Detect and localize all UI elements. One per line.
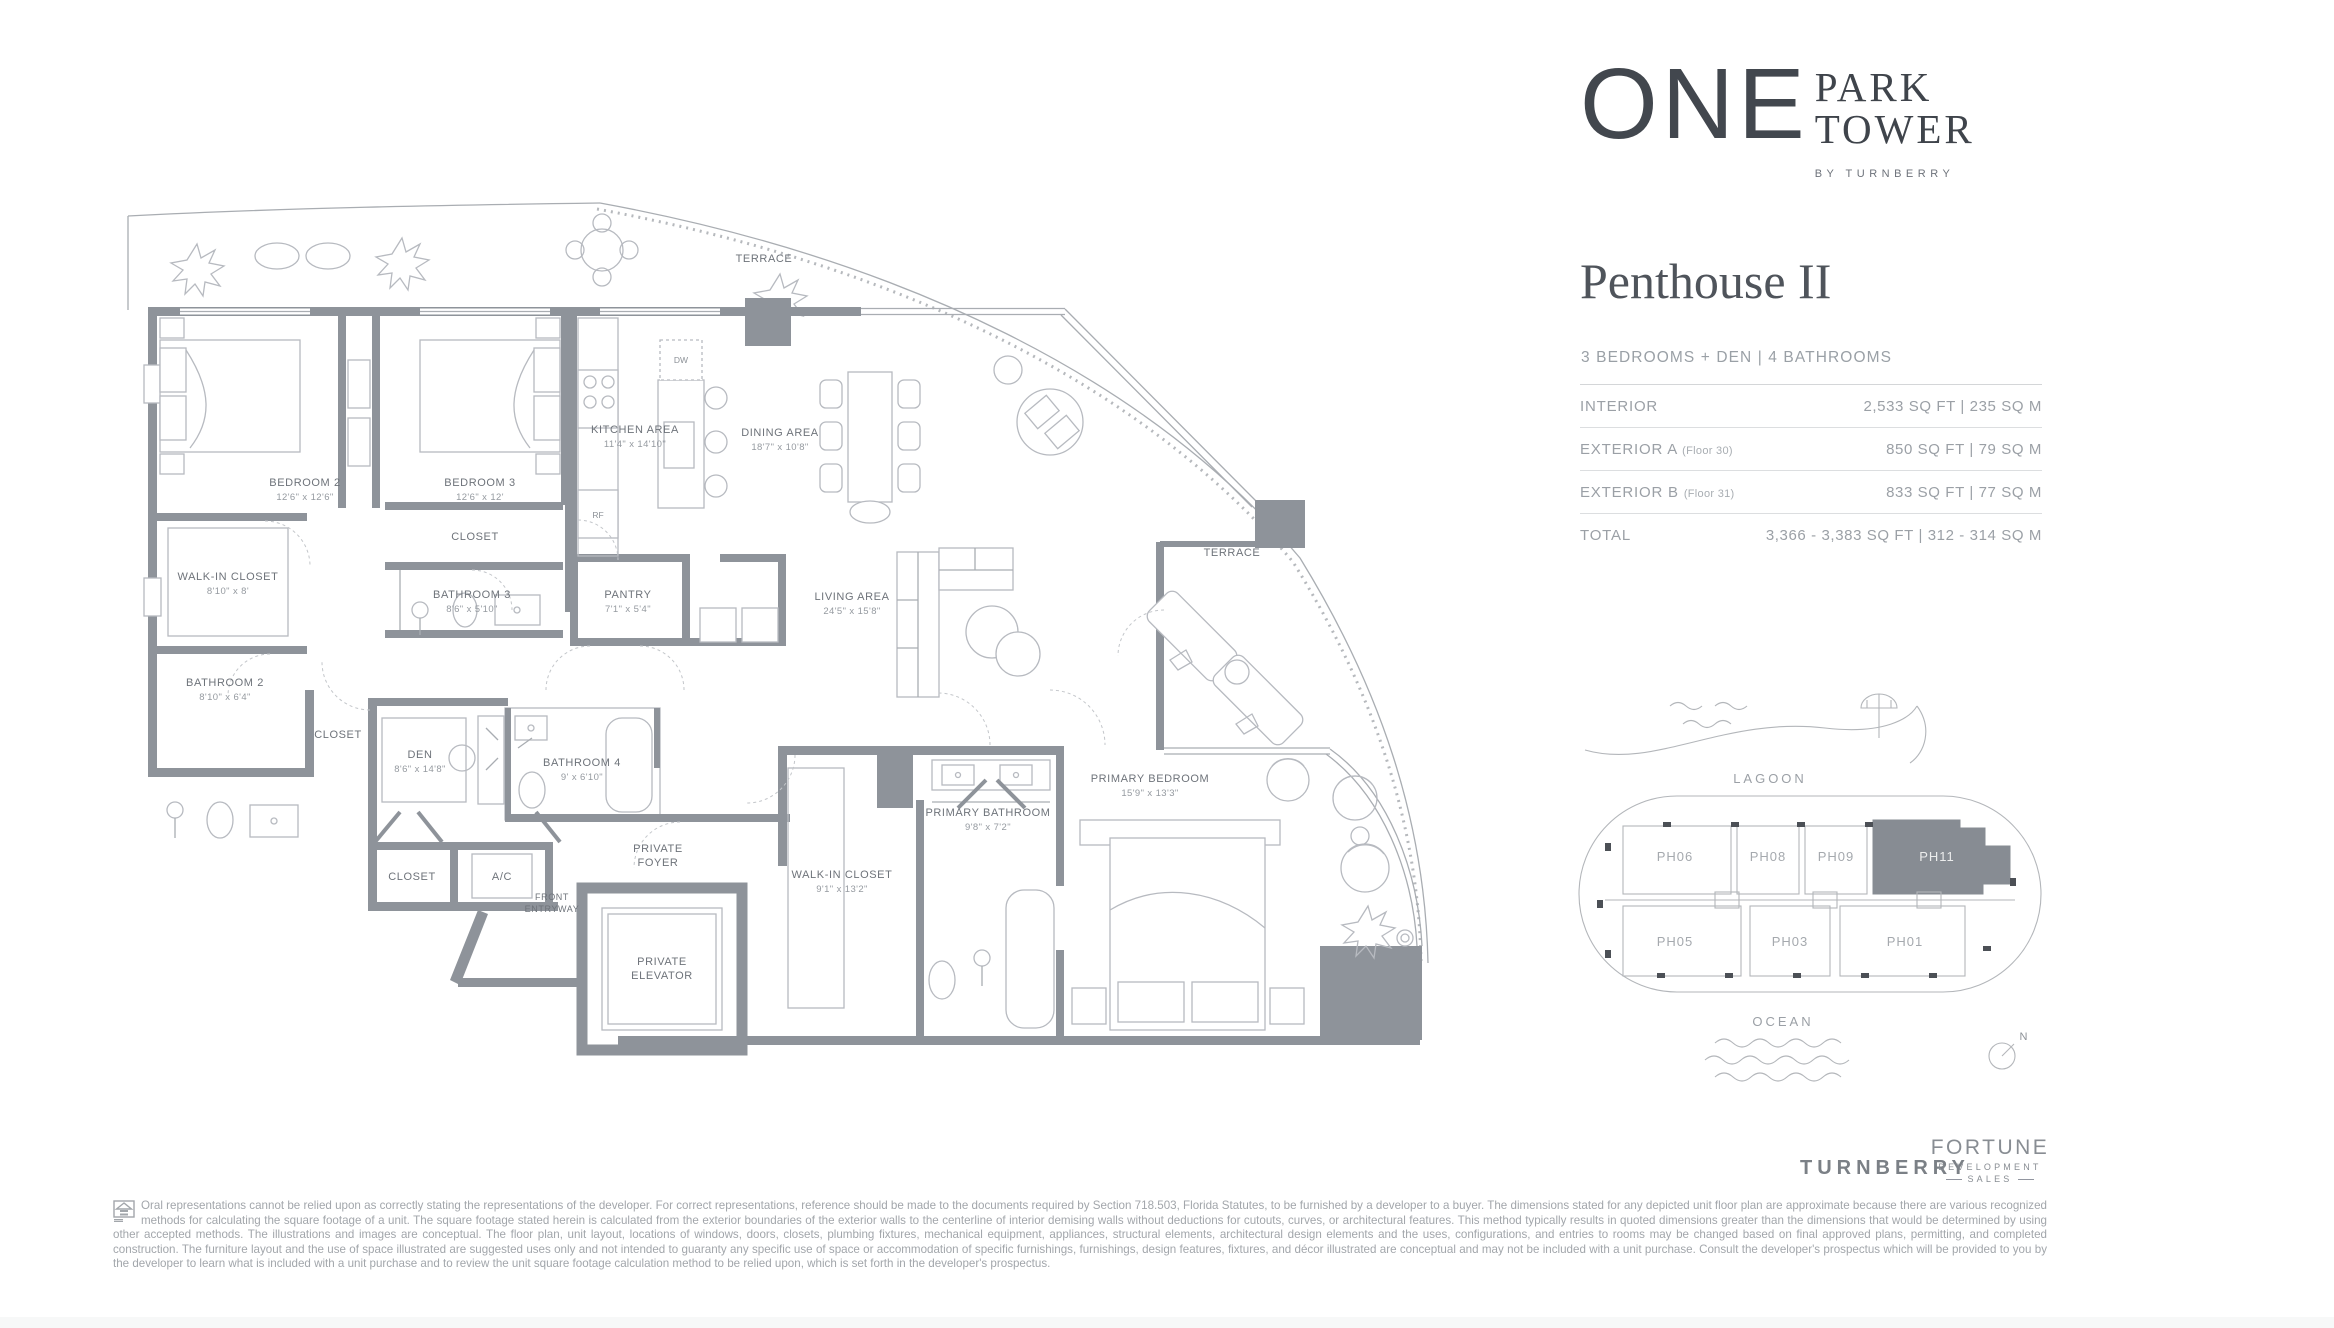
room-dims: 9'8" x 7'2" (965, 822, 1011, 833)
spec-label: EXTERIOR B (Floor 31) (1580, 484, 1735, 501)
wall-niche (348, 418, 370, 466)
floor-plan: TERRACE (120, 190, 1440, 1060)
spec-value: 2,533 SQ FT | 235 SQ M (1863, 398, 2042, 415)
wall (778, 554, 786, 646)
dryer-icon (700, 608, 736, 642)
logo-tower: TOWER (1815, 108, 1975, 150)
room-dims: 24'5" x 15'8" (823, 606, 880, 617)
elevator-car (608, 914, 716, 1024)
wall (372, 312, 380, 508)
unit-label-ph11: PH11 (1919, 849, 1955, 864)
spec-label: EXTERIOR A (Floor 30) (1580, 441, 1733, 458)
wall (1056, 746, 1064, 886)
wall (157, 646, 307, 654)
bottom-strip (0, 1317, 2334, 1328)
window (180, 309, 720, 315)
room-label: LIVING AREA (814, 591, 889, 603)
wall (778, 746, 787, 866)
room-dims: 12'6" x 12' (456, 492, 504, 503)
room-label: BATHROOM 2 (186, 677, 264, 689)
round-chair-icon (994, 356, 1083, 455)
disclaimer-text: Oral representations cannot be relied up… (113, 1199, 2047, 1270)
room-label: BEDROOM 3 (444, 477, 515, 489)
terrace-top-line (128, 203, 600, 216)
unit-label-ph05: PH05 (1657, 934, 1694, 949)
wall (916, 800, 924, 1040)
unit-label-ph03: PH03 (1772, 934, 1809, 949)
wall (990, 746, 1064, 755)
page-title: Penthouse II (1580, 252, 1831, 310)
wall (720, 554, 785, 562)
appliance-label: RF (592, 510, 603, 520)
wall (570, 554, 690, 562)
spec-row-exterior-a: EXTERIOR A (Floor 30) 850 SQ FT | 79 SQ … (1580, 427, 2042, 470)
spec-note: (Floor 30) (1682, 445, 1733, 457)
wall (305, 690, 314, 777)
round-chair-icon (1267, 759, 1309, 801)
room-label: PRIMARY BATHROOM (925, 807, 1050, 819)
bathroom-fixtures (929, 760, 1054, 1028)
wall (654, 708, 660, 768)
spec-table: INTERIOR 2,533 SQ FT | 235 SQ M EXTERIOR… (1580, 384, 2042, 556)
shoreline (1585, 706, 1926, 763)
room-dims: 8'6" x 14'8" (394, 764, 446, 775)
wall-angled (450, 910, 488, 985)
brochure-page: TERRACE (0, 0, 2334, 1328)
wall (682, 554, 690, 646)
wall (368, 698, 508, 706)
room-label: BEDROOM 2 (269, 477, 340, 489)
logo-one: ONE (1580, 52, 1809, 156)
bed-icon (1072, 820, 1304, 1030)
room-dims: 18'7" x 10'8" (751, 442, 808, 453)
disclaimer: Oral representations cannot be relied up… (113, 1199, 2047, 1272)
room-label: A/C (492, 871, 512, 883)
room-dims: 8'6" x 5'10" (446, 604, 498, 615)
room-label: PANTRY (604, 589, 651, 601)
wall (1056, 950, 1064, 1040)
room-dims: 8'10" x 6'4" (199, 692, 251, 703)
room-label: BATHROOM 4 (543, 757, 621, 769)
wall (385, 502, 563, 510)
wall-pier (877, 750, 913, 808)
spec-label: INTERIOR (1580, 398, 1658, 415)
logo-byline: BY TURNBERRY (1815, 153, 1975, 195)
wall (458, 978, 586, 987)
room-dims: 11'4" x 14'10" (604, 439, 666, 450)
spec-value: 3,366 - 3,383 SQ FT | 312 - 314 SQ M (1766, 527, 2042, 544)
den-furniture (382, 716, 504, 804)
plant-icon (171, 244, 224, 296)
room-label: WALK-IN CLOSET (178, 571, 279, 583)
unit-subtitle: 3 BEDROOMS + DEN | 4 BATHROOMS (1581, 349, 1892, 367)
plant-icon (376, 238, 429, 290)
logo-park: PARK (1815, 66, 1975, 108)
wall (505, 708, 511, 820)
dining-table-icon (820, 372, 920, 523)
room-dims: 9' x 6'10" (561, 772, 603, 783)
room-label: CLOSET (314, 729, 362, 741)
wall (570, 554, 578, 646)
wall (368, 842, 553, 850)
wall (385, 562, 563, 570)
wall-niche (348, 360, 370, 408)
window-wall (1065, 309, 1257, 502)
spec-value: 833 SQ FT | 77 SQ M (1886, 484, 2042, 501)
fortune-line3: SALES (1930, 1174, 2050, 1184)
room-dims: 8'10" x 8' (207, 586, 249, 597)
wall (1156, 542, 1164, 750)
wall-pier (745, 298, 791, 346)
building-units (1605, 820, 2015, 976)
equal-housing-icon (113, 1200, 135, 1222)
unit-label-ph09: PH09 (1818, 849, 1855, 864)
wall (505, 814, 790, 822)
wall-corner-block (1320, 946, 1422, 1040)
room-dims: 15'9" x 13'3" (1121, 788, 1178, 799)
room-dims: 9'1" x 13'2" (816, 884, 868, 895)
spec-row-interior: INTERIOR 2,533 SQ FT | 235 SQ M (1580, 384, 2042, 427)
lagoon-label: LAGOON (1733, 771, 1807, 786)
room-label: CLOSET (388, 871, 436, 883)
room-label: TERRACE (736, 253, 793, 265)
room-label: CLOSET (451, 531, 499, 543)
elevator-walls (582, 888, 742, 1050)
room-label: PRIVATE (633, 843, 683, 855)
wall (791, 307, 861, 316)
room-label: FOYER (638, 857, 679, 869)
umbrella-icon (1861, 694, 1897, 738)
fortune-line1: FORTUNE (1930, 1136, 2050, 1160)
brand-logo: ONE PARK TOWER BY TURNBERRY (1580, 52, 2060, 182)
terrace-table-icon (306, 243, 350, 269)
bed-icon (420, 318, 560, 474)
room-label: DEN (407, 749, 432, 761)
spec-value: 850 SQ FT | 79 SQ M (1886, 441, 2042, 458)
lagoon-waves-icon (1670, 703, 1747, 728)
room-dims: 7'1" x 5'4" (605, 604, 651, 615)
spec-label: TOTAL (1580, 527, 1631, 544)
spec-row-exterior-b: EXTERIOR B (Floor 31) 833 SQ FT | 77 SQ … (1580, 470, 2042, 513)
room-label: ENTRYWAY (525, 904, 580, 914)
room-label: WALK-IN CLOSET (792, 869, 893, 881)
terrace-dining-set-icon (566, 214, 638, 286)
room-label: BATHROOM 3 (433, 589, 511, 601)
appliance-label: DW (674, 355, 688, 365)
room-label: PRIMARY BEDROOM (1091, 773, 1210, 785)
unit-label-ph06: PH06 (1657, 849, 1694, 864)
elevator-car (602, 908, 722, 1030)
spec-row-total: TOTAL 3,366 - 3,383 SQ FT | 312 - 314 SQ… (1580, 513, 2042, 556)
fortune-logo: FORTUNE DEVELOPMENT SALES (1930, 1136, 2050, 1184)
window-wall (1061, 315, 1252, 507)
bed-icon (160, 318, 300, 474)
terrace-chairs-icon (1333, 776, 1389, 892)
washer-icon (742, 608, 778, 642)
terrace-table-icon (255, 243, 299, 269)
bathroom-fixtures (167, 802, 298, 838)
ocean-label: OCEAN (1752, 1014, 1813, 1029)
room-dims: 12'6" x 12'6" (276, 492, 333, 503)
room-label: TERRACE (1204, 547, 1261, 559)
key-plan: LAGOON PH06 PH08 PH09 (1565, 678, 2055, 1098)
svg-text:N: N (2020, 1031, 2029, 1043)
wall (157, 513, 307, 521)
wall (385, 630, 563, 638)
terrace-curve (600, 203, 1428, 963)
room-label: DINING AREA (741, 427, 819, 439)
kitchen-icons (578, 318, 727, 556)
wall (368, 698, 377, 910)
unit-label-ph08: PH08 (1750, 849, 1787, 864)
room-label: FRONT (535, 892, 569, 902)
coffee-table-icon (966, 606, 1040, 676)
room-label: PRIVATE (637, 956, 687, 968)
spec-note: (Floor 31) (1684, 488, 1735, 500)
logo-park-tower: PARK TOWER BY TURNBERRY (1815, 66, 1975, 195)
compass-icon: N (1989, 1031, 2028, 1069)
ocean-waves-icon (1705, 1039, 1849, 1081)
unit-label-ph01: PH01 (1887, 934, 1924, 949)
wall (148, 768, 313, 777)
fortune-line2: DEVELOPMENT (1930, 1162, 2050, 1172)
lounge-chair-icon (1144, 588, 1306, 748)
wall-pier (1255, 500, 1305, 548)
wall (450, 842, 458, 908)
room-label: ELEVATOR (631, 970, 693, 982)
room-label: KITCHEN AREA (591, 424, 679, 436)
